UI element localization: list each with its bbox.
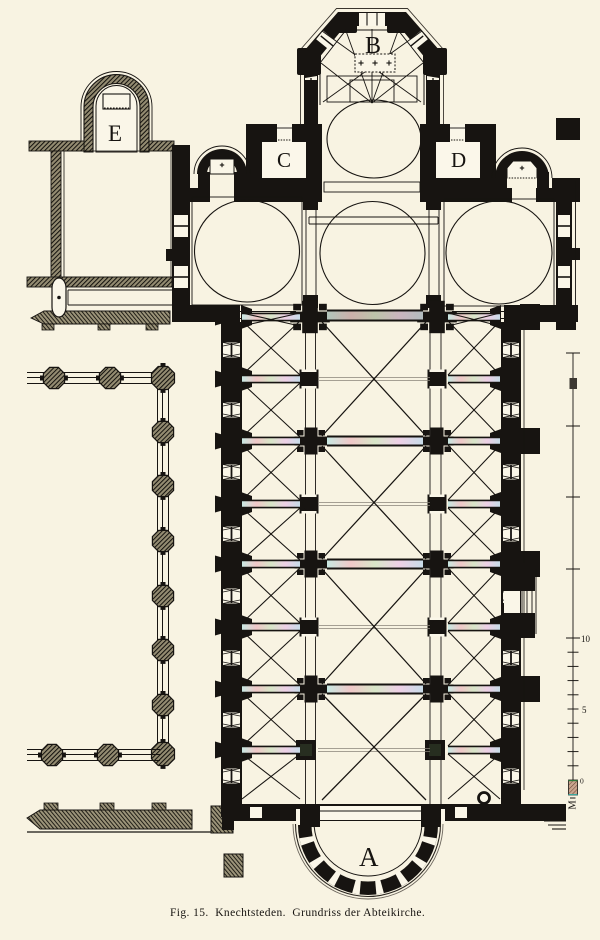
svg-text:M: M	[568, 800, 579, 810]
svg-text:Fig. 15. Knechtsteden. Grund: Fig. 15. Knechtsteden. Grundriss der Abt…	[170, 907, 425, 919]
svg-text:0: 0	[580, 777, 584, 786]
svg-text:5: 5	[582, 705, 587, 715]
svg-text:10: 10	[581, 634, 591, 644]
svg-text:A: A	[359, 842, 379, 872]
svg-text:E: E	[108, 121, 122, 146]
svg-text:D: D	[451, 148, 466, 172]
svg-text:C: C	[277, 148, 291, 172]
